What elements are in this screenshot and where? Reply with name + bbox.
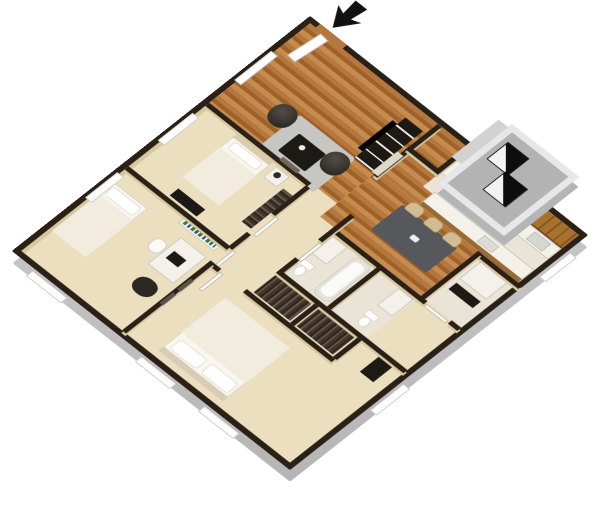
bedroom1-window xyxy=(158,113,200,146)
apartment-interior xyxy=(21,23,579,462)
wall-bedrooms-right-b xyxy=(228,232,251,250)
floorplan-3d-render xyxy=(0,0,608,506)
master-door xyxy=(199,272,224,292)
bedroom2-door xyxy=(215,250,236,266)
bedroom2-lounge-chair xyxy=(127,273,162,301)
